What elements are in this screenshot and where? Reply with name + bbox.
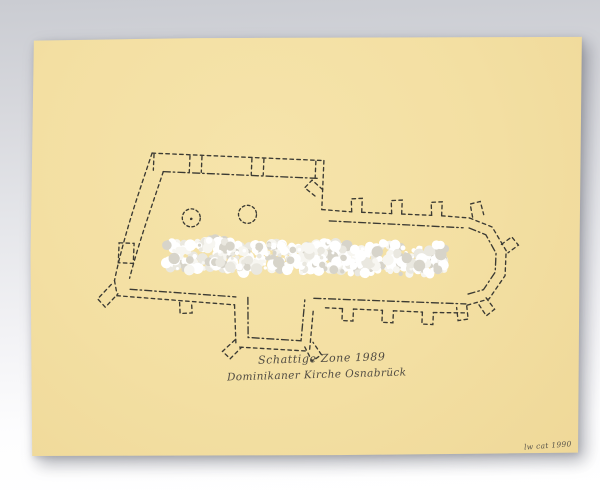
relief-texture <box>161 233 450 283</box>
floor-plan-drawing <box>30 36 583 456</box>
artwork-paper: Schattige Zone 1989 Dominikaner Kirche O… <box>30 36 583 456</box>
paper-surface: Schattige Zone 1989 Dominikaner Kirche O… <box>30 36 583 456</box>
relief-band <box>161 233 450 283</box>
